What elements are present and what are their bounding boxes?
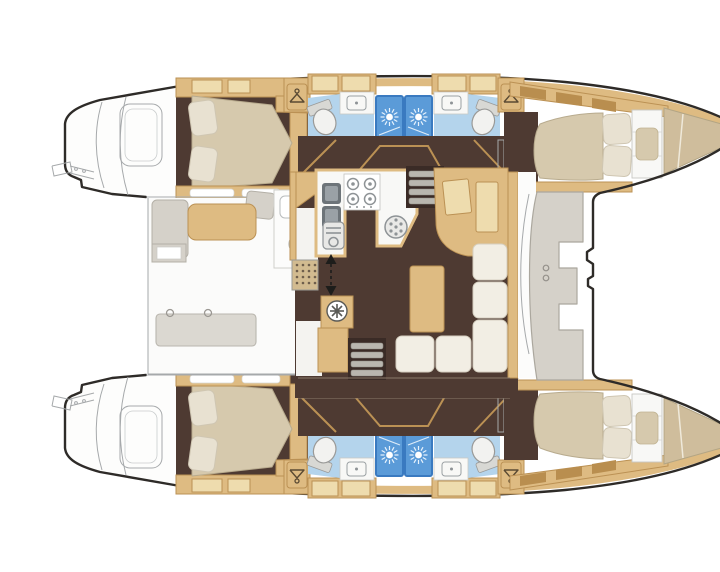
- floor-plan-canvas: [40, 16, 720, 556]
- sofa-cushion: [473, 282, 507, 318]
- sofa-cushion: [436, 336, 471, 372]
- salon-table: [410, 266, 444, 332]
- sofa-corner-cushion: [473, 320, 507, 372]
- cockpit-table: [156, 314, 256, 346]
- washer-cabinet: [318, 296, 353, 372]
- round-sink-icon: [385, 216, 407, 238]
- cockpit-bench-cushion: [188, 204, 256, 240]
- starboard-companionway-steps: [348, 338, 386, 380]
- washer-wheel-icon: [327, 301, 347, 321]
- forward-cockpit: [518, 172, 583, 380]
- catamaran-floor-plan: Catamaran yacht interior floor plan, top…: [40, 16, 720, 556]
- oven-icon: [323, 222, 344, 249]
- stove-burners-icon: [344, 174, 380, 210]
- nav-station: [434, 168, 508, 256]
- salon: [290, 166, 518, 398]
- sofa-cushion: [473, 244, 507, 280]
- sofa-cushion: [396, 336, 434, 372]
- sliding-door-frame: [290, 172, 296, 260]
- entry-mat-icon: [292, 260, 318, 290]
- forward-cockpit-seat: [530, 192, 584, 380]
